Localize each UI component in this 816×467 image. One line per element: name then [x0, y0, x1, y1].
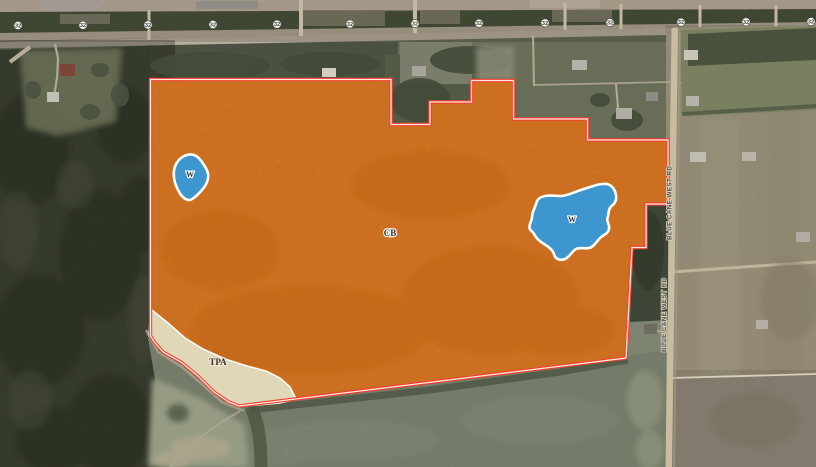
svg-text:BLUE CANE WEST RD: BLUE CANE WEST RD	[667, 166, 674, 240]
svg-text:32: 32	[476, 21, 482, 27]
svg-text:W: W	[568, 215, 576, 224]
svg-text:32: 32	[412, 22, 418, 28]
svg-text:32: 32	[210, 23, 216, 29]
svg-text:32: 32	[274, 22, 280, 28]
svg-text:CB: CB	[384, 228, 397, 238]
svg-text:32: 32	[808, 20, 814, 26]
svg-text:TPA: TPA	[209, 357, 227, 367]
svg-text:32: 32	[15, 24, 21, 30]
svg-text:32: 32	[542, 21, 548, 27]
svg-text:W: W	[186, 170, 194, 179]
svg-text:32: 32	[678, 20, 684, 26]
svg-text:BLUE CANE WEST RD: BLUE CANE WEST RD	[661, 278, 668, 352]
svg-text:32: 32	[347, 22, 353, 28]
svg-text:32: 32	[607, 21, 613, 27]
svg-text:32: 32	[743, 20, 749, 26]
svg-text:32: 32	[80, 23, 86, 29]
svg-text:32: 32	[145, 23, 151, 29]
